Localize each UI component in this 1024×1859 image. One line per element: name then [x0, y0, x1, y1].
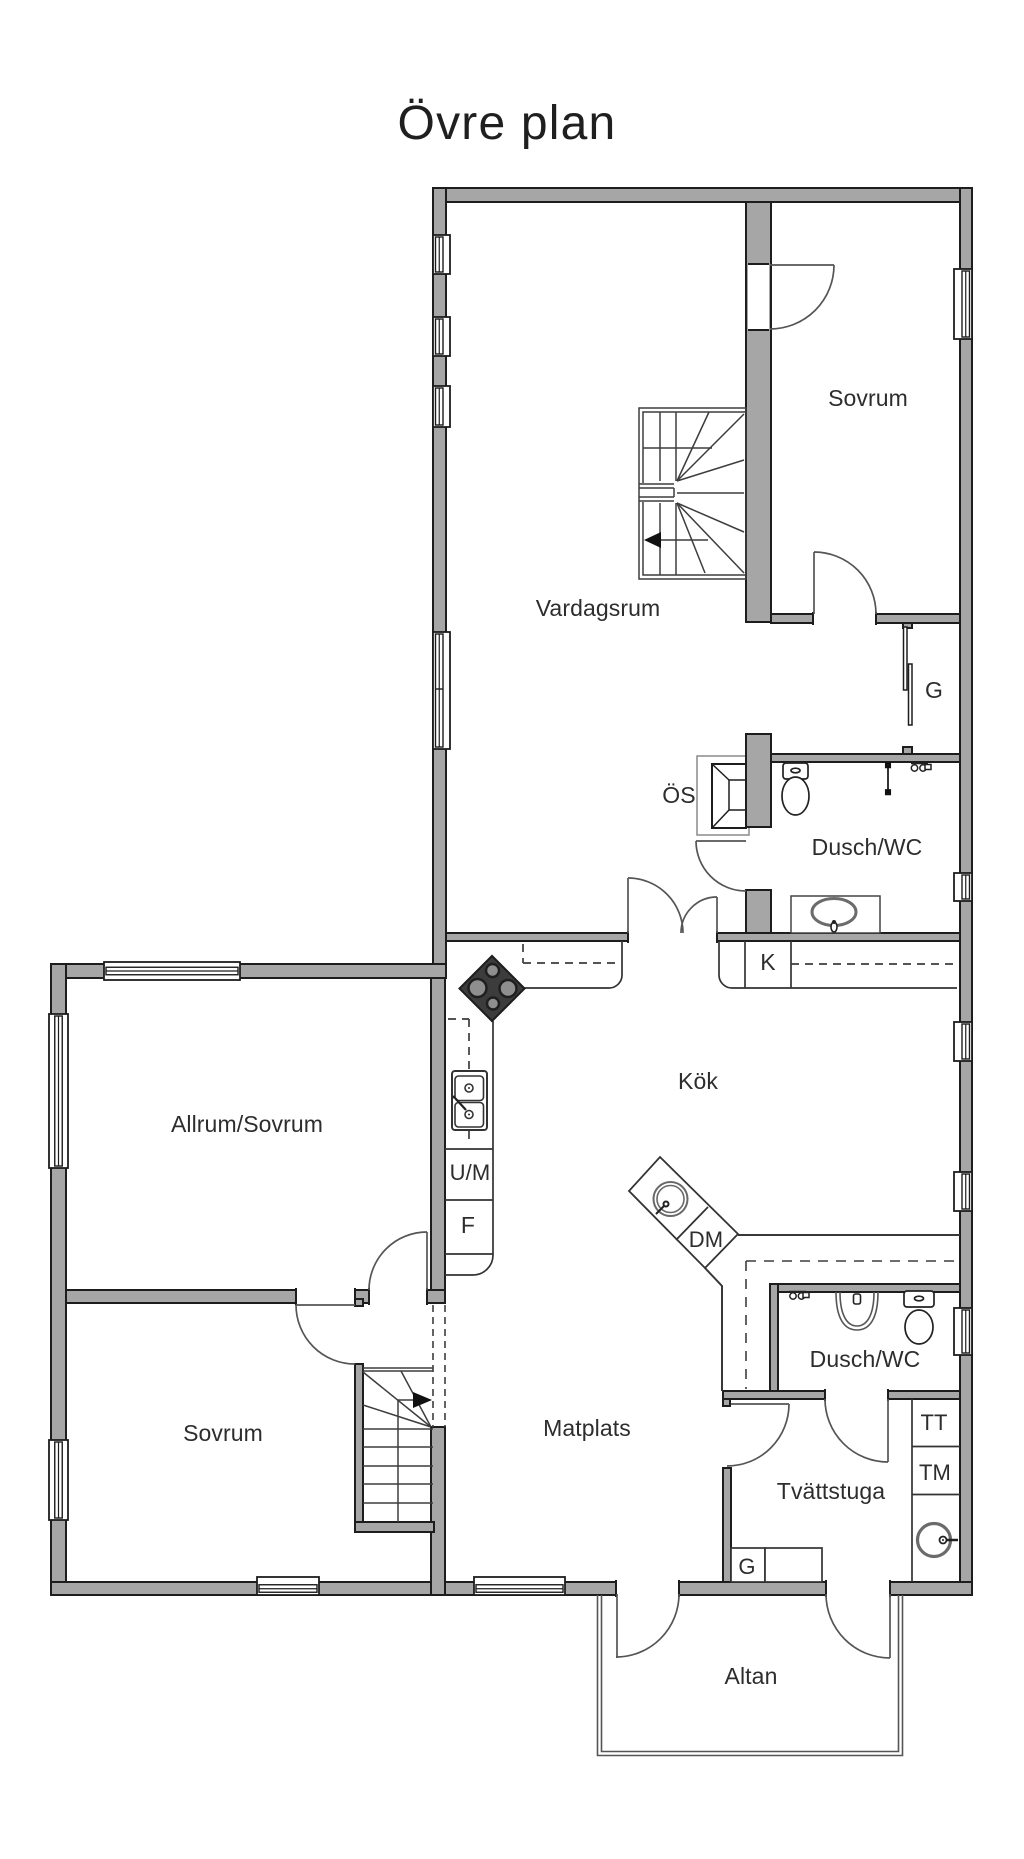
svg-text:Matplats: Matplats [543, 1415, 631, 1441]
svg-text:Sovrum: Sovrum [828, 385, 908, 411]
svg-text:G: G [738, 1554, 755, 1579]
svg-text:F: F [461, 1212, 475, 1238]
svg-text:Altan: Altan [725, 1663, 778, 1689]
svg-text:G: G [925, 677, 943, 703]
svg-text:U/M: U/M [450, 1160, 491, 1185]
svg-text:ÖS: ÖS [662, 782, 695, 808]
svg-text:Dusch/WC: Dusch/WC [812, 834, 923, 860]
svg-text:Sovrum: Sovrum [183, 1420, 263, 1446]
svg-text:TT: TT [920, 1410, 947, 1435]
svg-text:Övre plan: Övre plan [398, 97, 617, 150]
svg-text:DM: DM [689, 1227, 723, 1252]
svg-text:K: K [760, 949, 776, 975]
svg-text:Kök: Kök [678, 1068, 718, 1094]
svg-text:Tvättstuga: Tvättstuga [777, 1478, 885, 1504]
svg-text:Allrum/Sovrum: Allrum/Sovrum [171, 1111, 323, 1137]
svg-text:Vardagsrum: Vardagsrum [536, 595, 661, 621]
svg-text:TM: TM [919, 1460, 951, 1485]
svg-text:Dusch/WC: Dusch/WC [810, 1346, 921, 1372]
